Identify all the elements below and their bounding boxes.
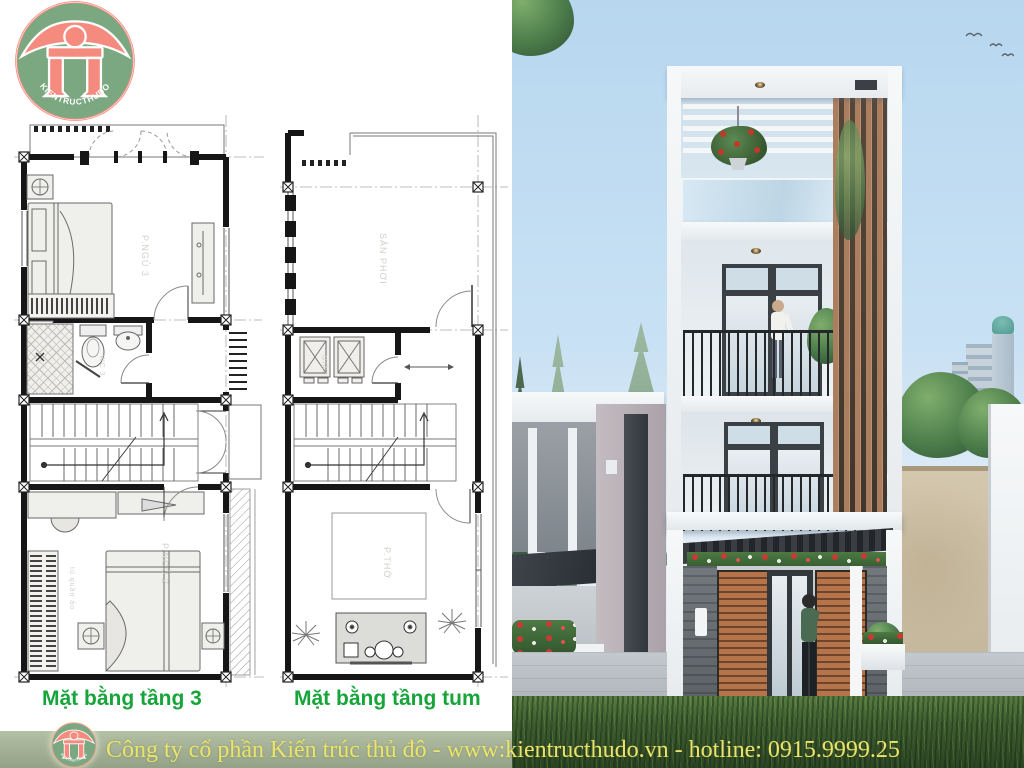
room-label-worship: P.THỜ xyxy=(382,547,392,579)
main-house xyxy=(667,60,902,708)
transom2-left xyxy=(728,426,770,444)
transom-right xyxy=(776,268,818,290)
frame-right-band xyxy=(888,66,902,536)
room-label-bedroom2: P.NGỦ 2 xyxy=(160,543,171,585)
wardrobe-3 xyxy=(28,294,114,318)
floor-plan-3: P.NGỦ 3 WC 3 P.NGỦ 2 tủ quần áo xyxy=(14,115,264,690)
stone-pier-left xyxy=(683,566,717,708)
neighbor-house-right xyxy=(988,404,1024,694)
slab-3 xyxy=(667,512,902,530)
lightwell-doors xyxy=(196,405,261,479)
brand-logo xyxy=(14,0,136,122)
plant-right xyxy=(438,609,466,633)
floor3-railing xyxy=(683,330,851,401)
room-label-wardrobe: tủ quần áo xyxy=(68,567,77,610)
transom-left xyxy=(726,268,768,290)
footer-logo xyxy=(50,722,98,768)
ground-pier-left-white xyxy=(667,530,683,708)
worship-room xyxy=(292,489,470,663)
bedroom2-furniture xyxy=(28,492,224,671)
transom2-right xyxy=(778,426,820,444)
doorbell-panel xyxy=(695,608,707,636)
door-bedroom3 xyxy=(154,286,188,320)
neighbor-window xyxy=(606,460,617,474)
room-label-laundry: GIẶT xyxy=(320,355,329,375)
stairs-tum xyxy=(294,404,456,481)
neighbor-column-1 xyxy=(528,428,537,556)
carport-roof xyxy=(512,549,596,589)
planter-box xyxy=(861,644,905,670)
ground-white-column xyxy=(850,566,862,708)
caption-floor3: Mặt bằng tầng 3 xyxy=(42,687,202,711)
person-front xyxy=(793,592,823,708)
wood-gate-left xyxy=(717,570,769,712)
planter-flowers xyxy=(863,632,903,644)
poster-canvas: P.NGỦ 3 WC 3 P.NGỦ 2 tủ quần áo xyxy=(0,0,1024,768)
terrace-door xyxy=(436,285,472,327)
footer-company-line: Công ty cổ phần Kiến trúc thủ đô - www:k… xyxy=(106,737,1024,764)
room-label-wc: WC 3 xyxy=(98,355,105,377)
foliage-corner xyxy=(512,0,574,56)
plant-left xyxy=(292,621,320,645)
ground-pier-right-white xyxy=(886,530,902,708)
neighbor-column-2 xyxy=(568,428,577,556)
house-render xyxy=(512,0,1024,768)
tum-glass-rail xyxy=(681,178,848,226)
frame-left-band xyxy=(667,66,681,536)
floor-plan-tum: SÂN PHƠI GIẶT P.THỜ xyxy=(280,115,508,690)
birds xyxy=(964,28,1014,62)
caption-tum: Mặt bằng tầng tum xyxy=(294,687,481,711)
hedge-flowers-left xyxy=(512,620,576,654)
parapet-downlight xyxy=(755,82,765,88)
room-label-terrace: SÂN PHƠI xyxy=(378,233,388,285)
worship-window xyxy=(476,514,481,627)
lightwell-hatch xyxy=(230,489,255,675)
tower-dome xyxy=(992,316,1014,334)
downlight-floor3 xyxy=(751,248,761,254)
stairs-floor3 xyxy=(30,404,198,481)
room-label-bedroom3: P.NGỦ 3 xyxy=(140,235,151,277)
parapet-vent xyxy=(855,80,877,90)
wc-room xyxy=(27,324,149,394)
neighbor-porch xyxy=(512,422,604,552)
louver-fins xyxy=(229,333,247,389)
terrace-louver-wall xyxy=(285,163,346,329)
stairs-arrow xyxy=(42,413,169,468)
entry-glass-left xyxy=(772,576,787,702)
